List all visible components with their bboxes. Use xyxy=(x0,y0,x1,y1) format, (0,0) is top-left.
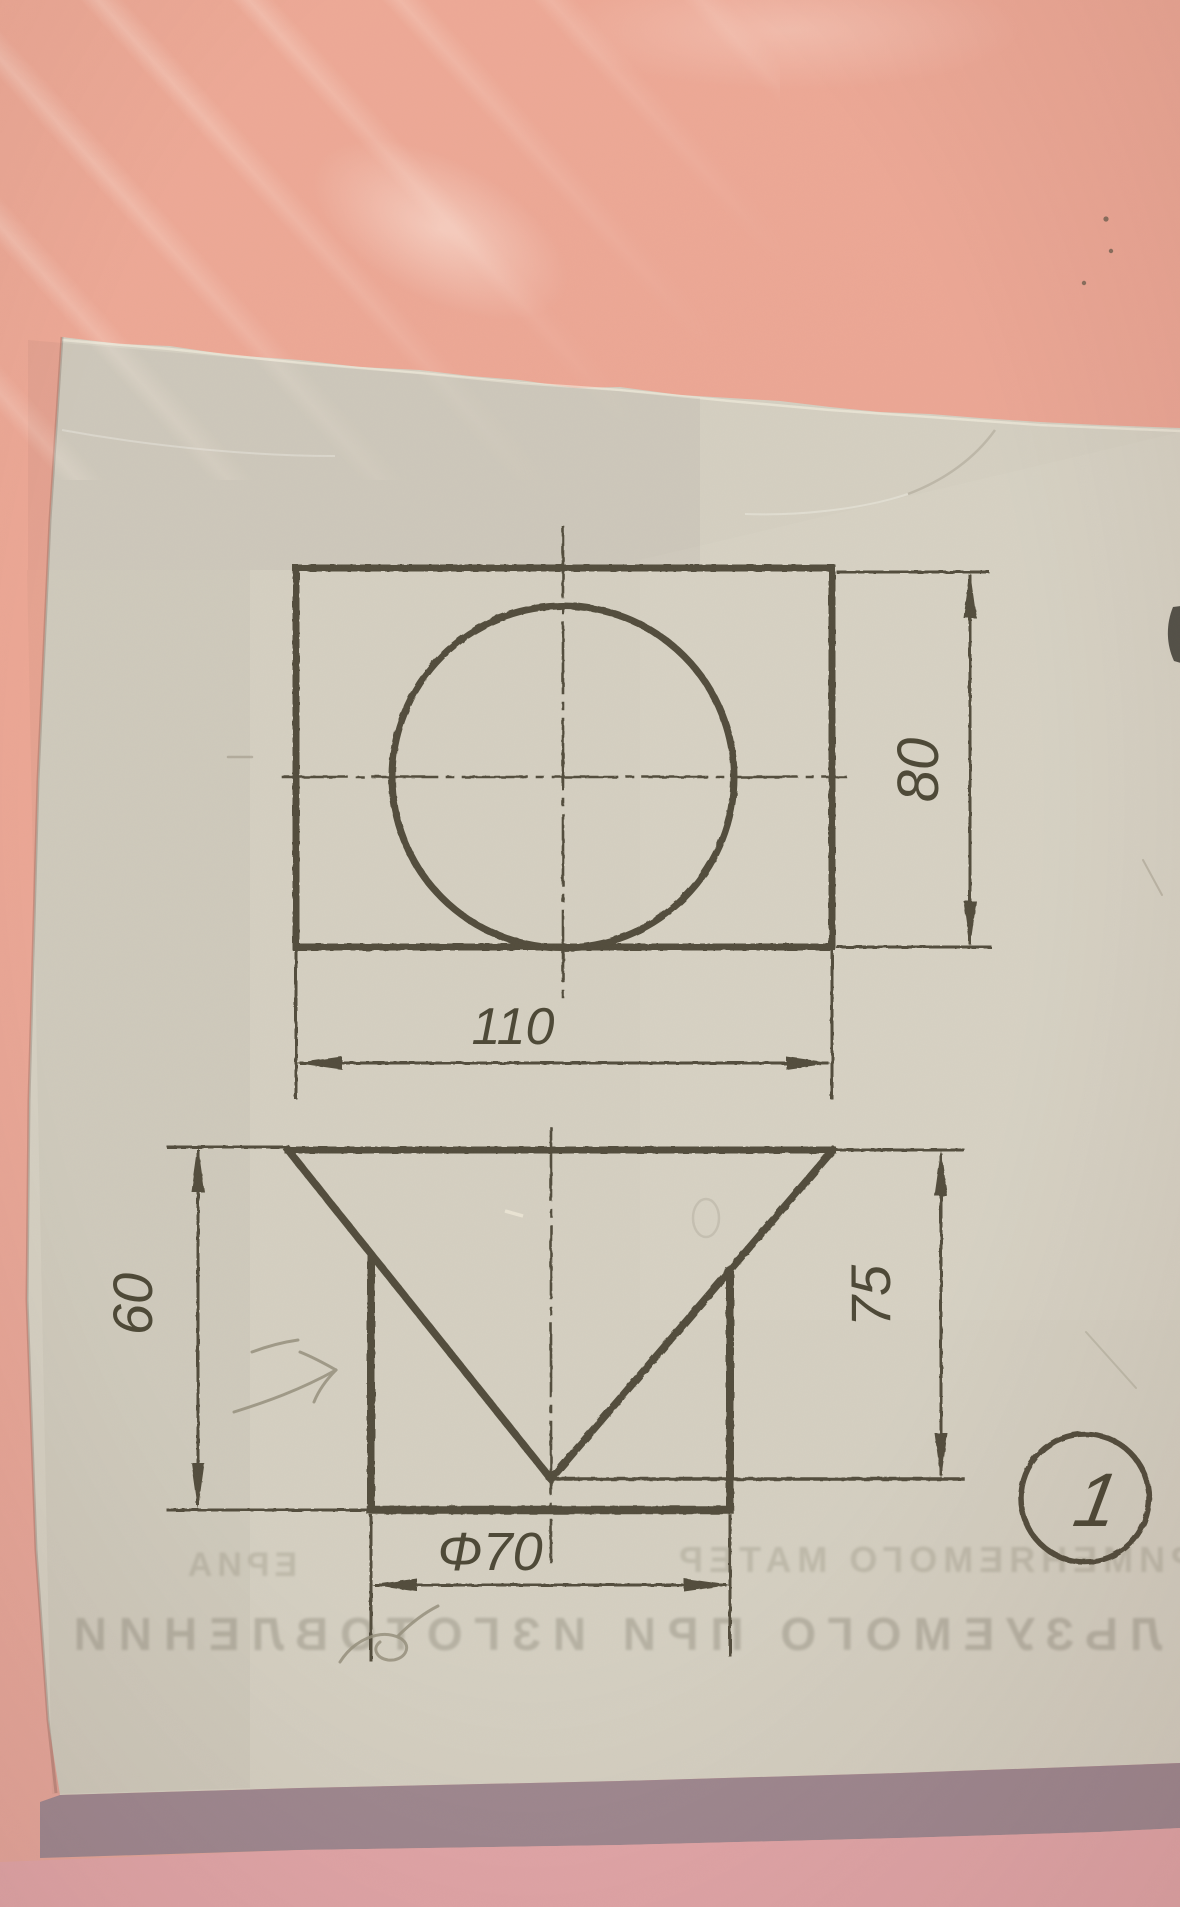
light-reflection-top xyxy=(560,0,1020,90)
photo-of-drawing: ЕРИА ПРИМЕНЯЕМОГО МАТЕР ЛЬЗУЕМОГО ПРИ ИЗ… xyxy=(0,0,1180,1907)
